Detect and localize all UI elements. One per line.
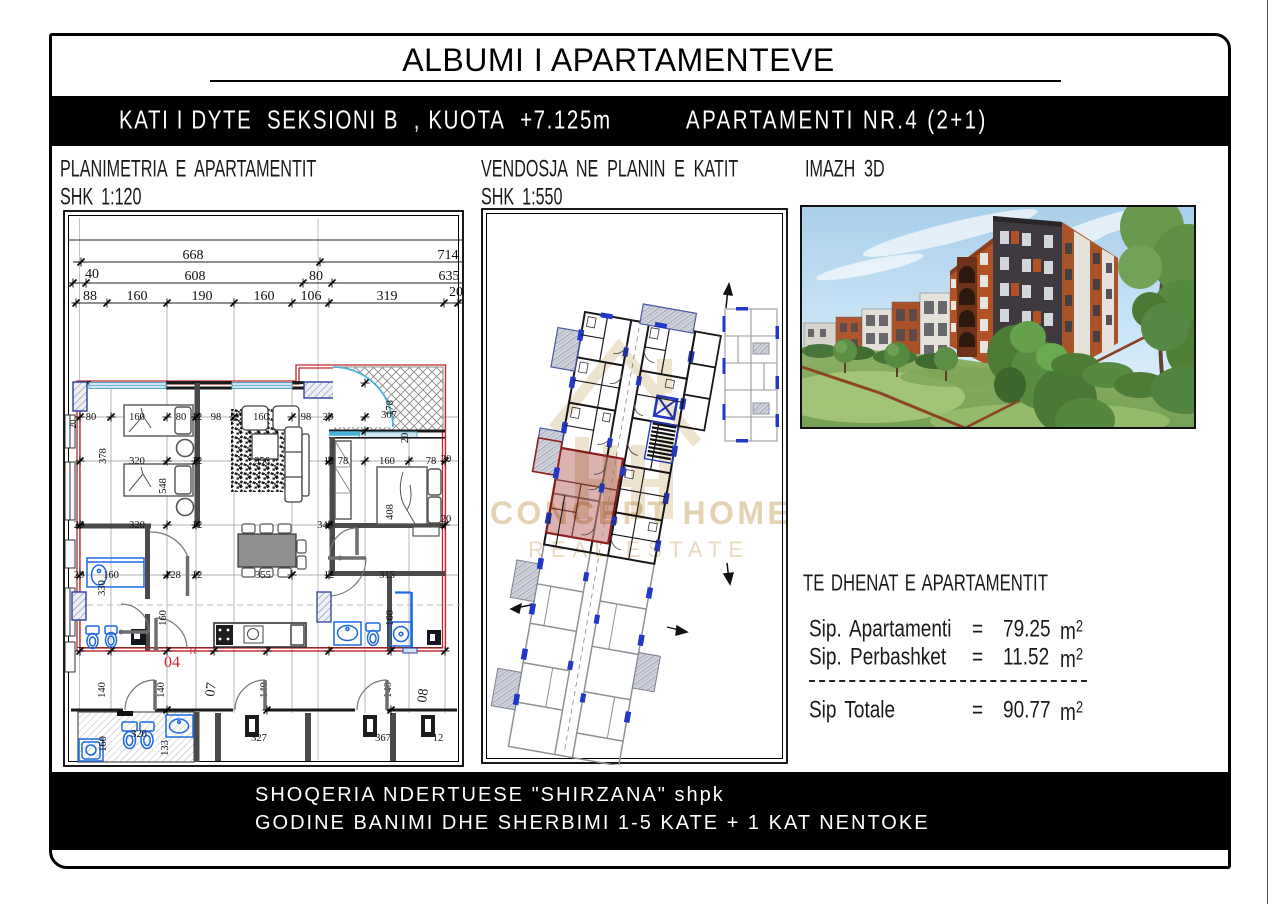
- svg-text:668: 668: [183, 248, 204, 263]
- svg-text:330: 330: [97, 580, 108, 596]
- svg-text:12: 12: [433, 733, 444, 744]
- svg-text:106: 106: [301, 289, 322, 304]
- svg-text:714: 714: [438, 248, 459, 263]
- svg-text:160: 160: [127, 289, 148, 304]
- svg-text:160: 160: [379, 456, 395, 467]
- svg-text:04: 04: [164, 654, 180, 671]
- svg-text:160: 160: [98, 736, 109, 752]
- svg-text:20: 20: [400, 433, 411, 444]
- svg-text:140: 140: [156, 682, 167, 698]
- svg-text:327: 327: [251, 733, 267, 744]
- svg-text:12: 12: [192, 520, 203, 531]
- svg-text:12: 12: [192, 456, 203, 467]
- svg-text:548: 548: [158, 478, 169, 494]
- svg-text:160: 160: [129, 412, 145, 423]
- svg-text:320: 320: [129, 456, 145, 467]
- svg-text:40: 40: [85, 267, 99, 282]
- svg-text:635: 635: [439, 269, 460, 284]
- svg-text:378: 378: [98, 448, 109, 464]
- svg-text:78: 78: [338, 456, 349, 467]
- svg-text:315: 315: [379, 570, 395, 581]
- svg-text:98: 98: [211, 412, 222, 423]
- svg-text:80: 80: [176, 412, 187, 423]
- svg-text:08: 08: [415, 688, 432, 704]
- svg-text:88: 88: [83, 289, 97, 304]
- svg-text:319: 319: [377, 289, 398, 304]
- svg-text:190: 190: [192, 289, 213, 304]
- svg-text:20: 20: [449, 285, 463, 300]
- svg-text:160: 160: [158, 610, 169, 626]
- svg-text:160: 160: [103, 570, 119, 581]
- svg-text:160: 160: [385, 610, 396, 626]
- svg-text:98: 98: [301, 412, 312, 423]
- svg-text:340: 340: [317, 520, 333, 531]
- svg-text:12: 12: [192, 412, 203, 423]
- svg-text:R: R: [190, 646, 197, 656]
- svg-text:160: 160: [253, 412, 269, 423]
- svg-text:355: 355: [255, 570, 271, 581]
- svg-text:07: 07: [203, 682, 220, 698]
- svg-text:320: 320: [129, 520, 145, 531]
- svg-text:608: 608: [185, 269, 206, 284]
- svg-text:178: 178: [385, 400, 396, 416]
- svg-text:356: 356: [254, 456, 270, 467]
- svg-text:367: 367: [375, 733, 391, 744]
- svg-text:12: 12: [192, 570, 203, 581]
- svg-text:160: 160: [254, 289, 275, 304]
- svg-text:408: 408: [385, 504, 396, 520]
- svg-text:320: 320: [131, 729, 147, 740]
- svg-text:80: 80: [309, 269, 323, 284]
- svg-text:140: 140: [97, 682, 108, 698]
- svg-text:80: 80: [86, 412, 97, 423]
- svg-text:133: 133: [160, 740, 171, 756]
- svg-text:78: 78: [426, 456, 437, 467]
